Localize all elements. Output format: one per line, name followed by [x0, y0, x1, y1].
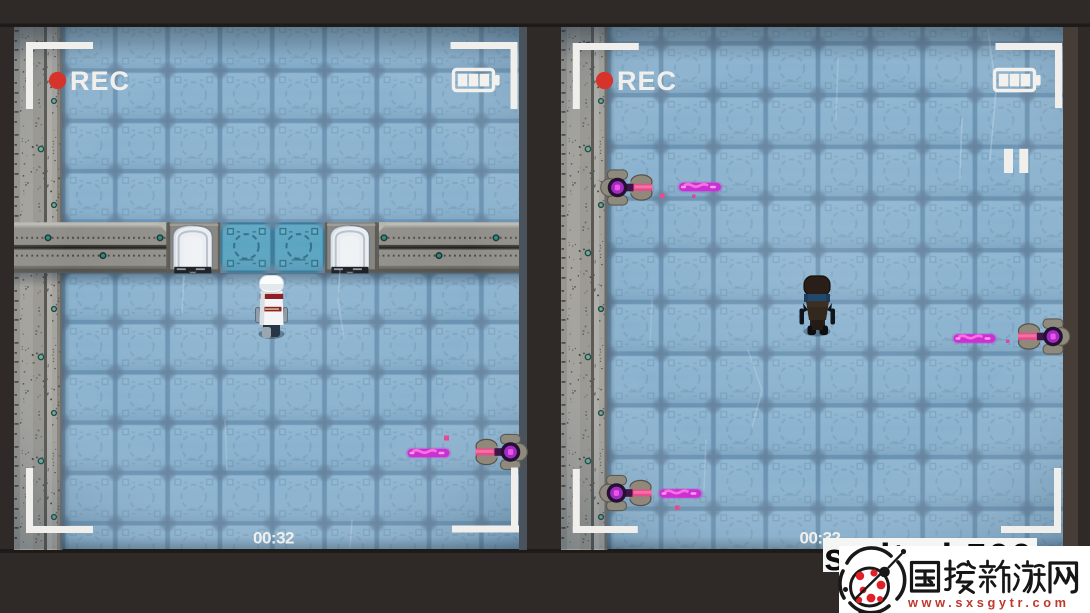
svg-text:00:32: 00:32: [253, 529, 294, 548]
svg-text:www.sxsgytr.com: www.sxsgytr.com: [907, 595, 1070, 610]
svg-text:REC: REC: [70, 66, 130, 96]
svg-text:REC: REC: [617, 66, 677, 96]
